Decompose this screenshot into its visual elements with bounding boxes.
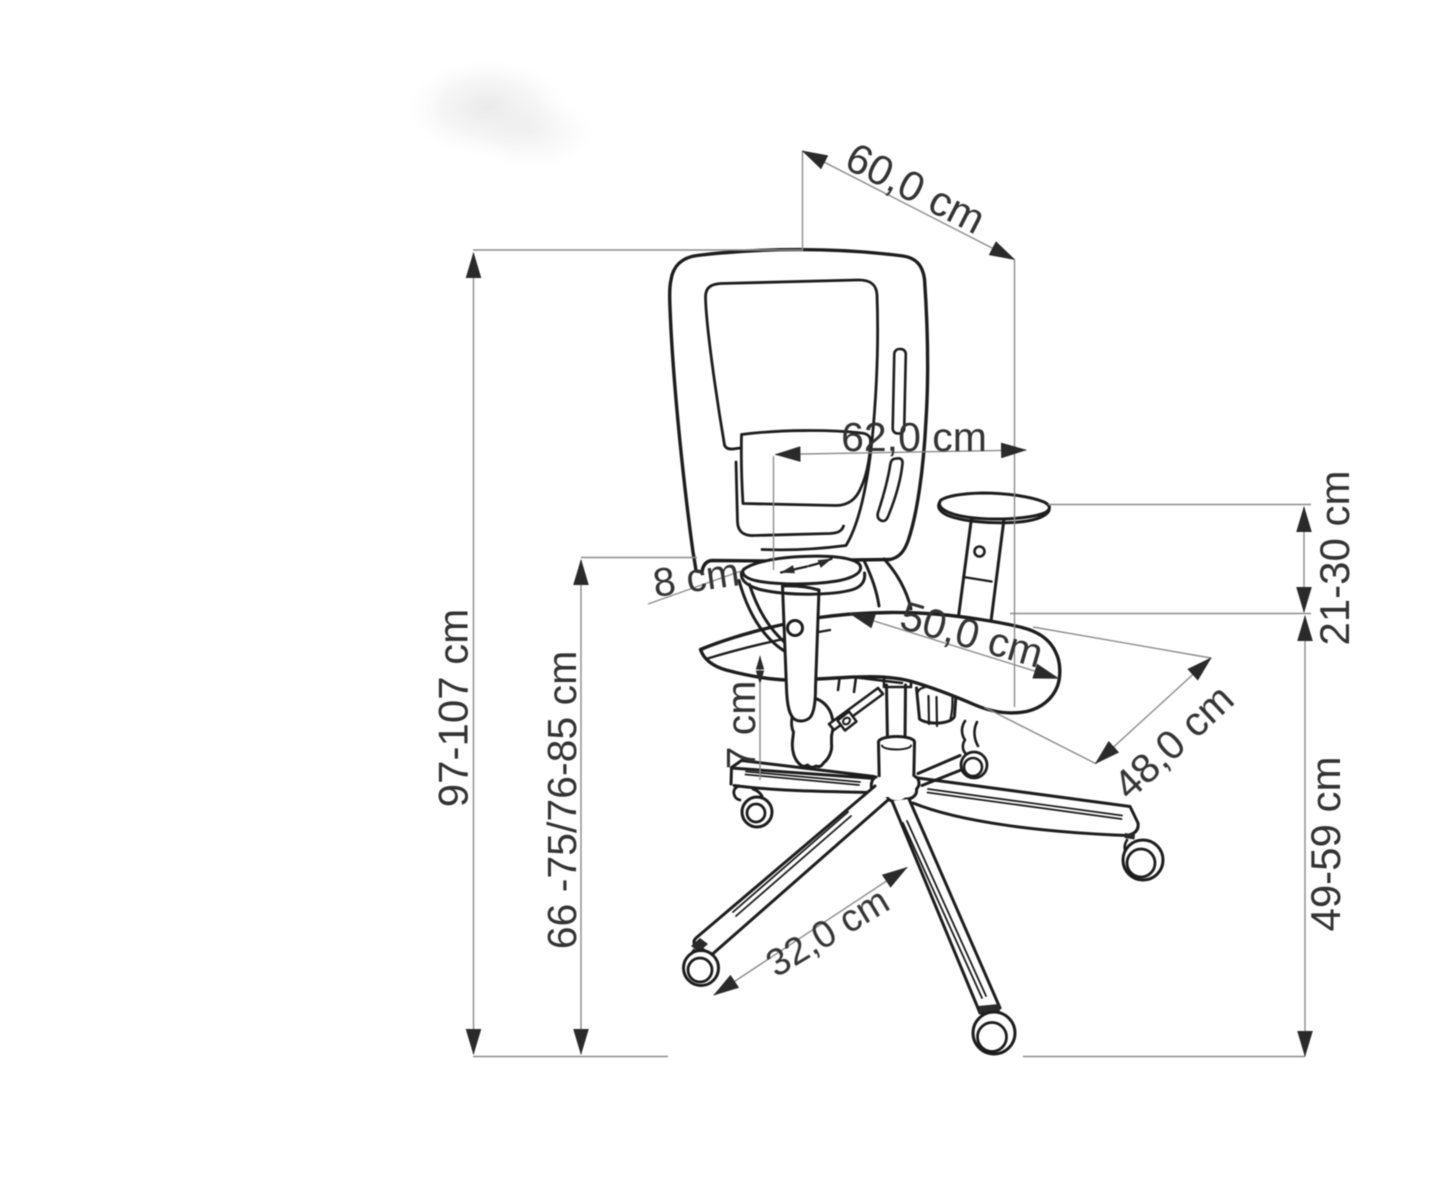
svg-text:7 cm: 7 cm — [718, 681, 764, 770]
svg-text:21-30 cm: 21-30 cm — [1311, 470, 1358, 645]
svg-text:66 -75/76-85 cm: 66 -75/76-85 cm — [539, 651, 585, 950]
svg-text:97-107 cm: 97-107 cm — [430, 609, 477, 807]
svg-text:62,0 cm: 62,0 cm — [841, 414, 987, 460]
svg-text:49-59 cm: 49-59 cm — [1302, 756, 1349, 931]
